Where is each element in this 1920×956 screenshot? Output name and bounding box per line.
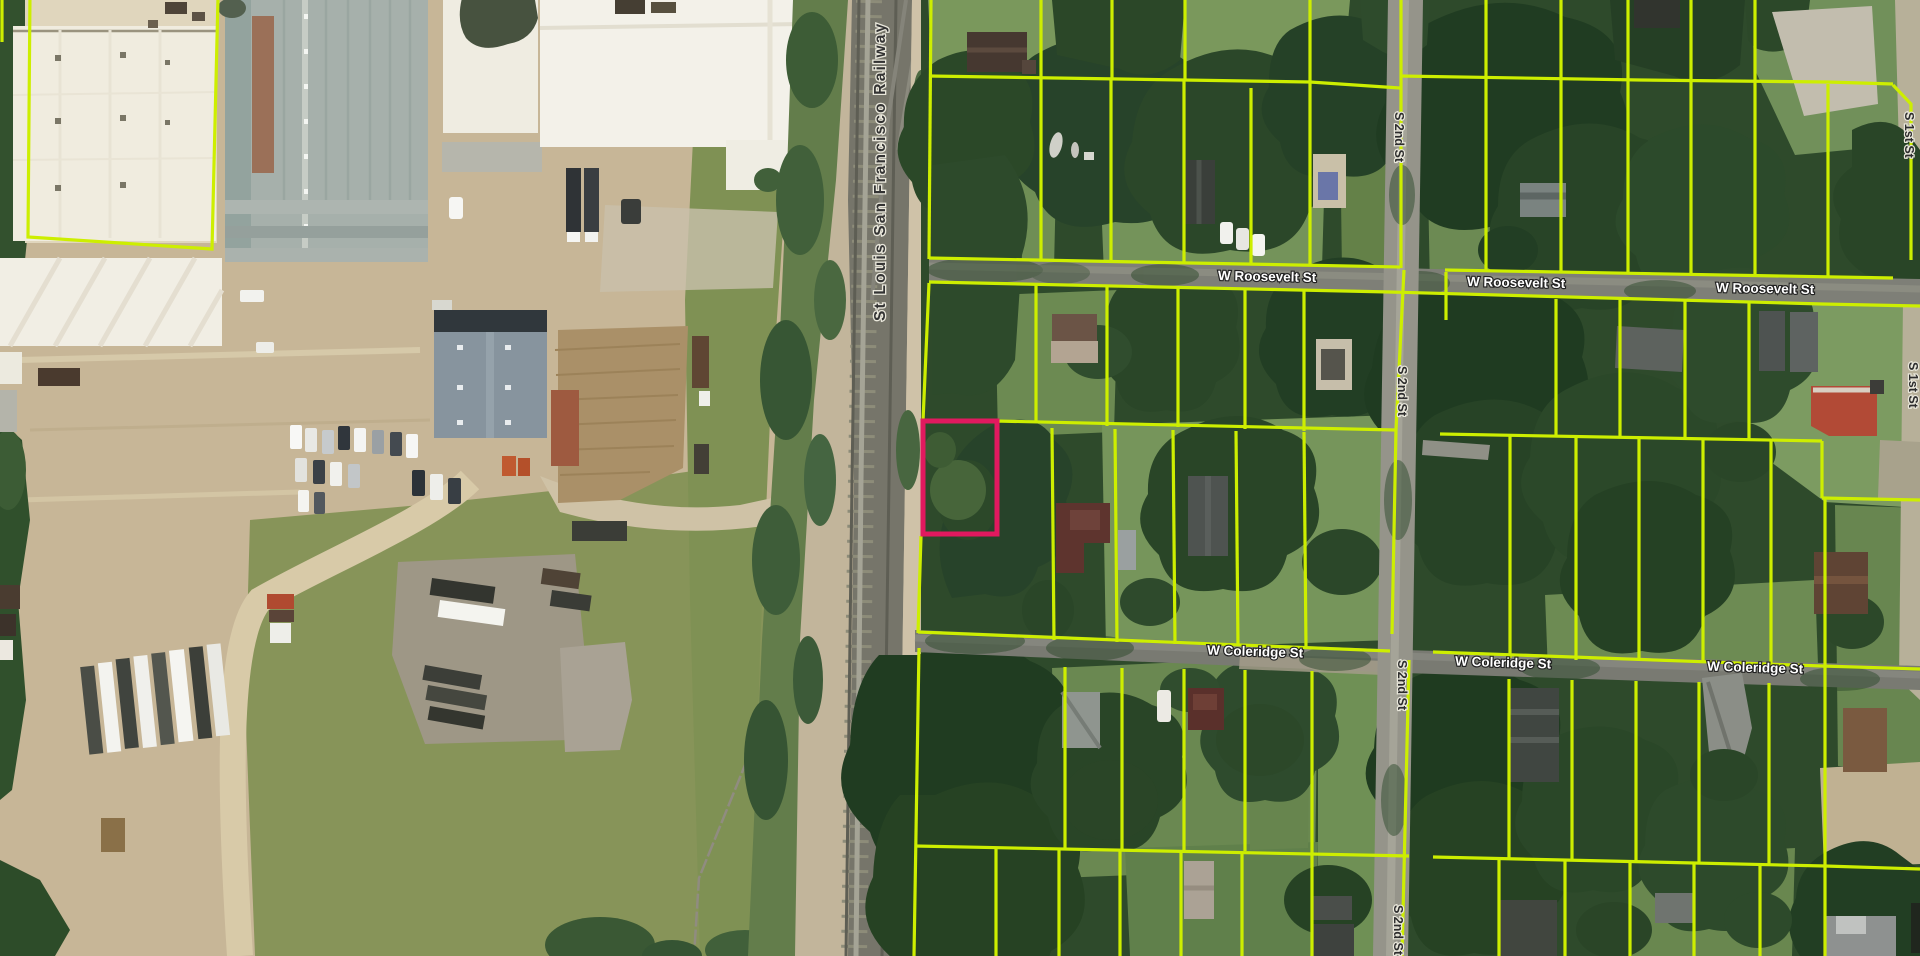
svg-text:W Coleridge St: W Coleridge St	[1707, 658, 1804, 676]
svg-text:S 2nd St: S 2nd St	[1395, 366, 1409, 417]
svg-text:W Roosevelt St: W Roosevelt St	[1467, 274, 1566, 291]
svg-text:W Coleridge St: W Coleridge St	[1207, 642, 1304, 660]
svg-text:St Louis San Francisco Railway: St Louis San Francisco Railway	[872, 22, 889, 321]
svg-text:S 2nd St: S 2nd St	[1395, 660, 1409, 711]
svg-text:S 2nd St: S 2nd St	[1392, 112, 1406, 163]
svg-text:W Roosevelt St: W Roosevelt St	[1218, 268, 1317, 285]
svg-text:S 2nd St: S 2nd St	[1391, 905, 1405, 956]
svg-text:W Coleridge St: W Coleridge St	[1455, 653, 1552, 671]
svg-text:S 1st St: S 1st St	[1906, 362, 1920, 409]
svg-text:S 1st St: S 1st St	[1902, 112, 1916, 159]
svg-text:W Roosevelt St: W Roosevelt St	[1716, 280, 1815, 297]
